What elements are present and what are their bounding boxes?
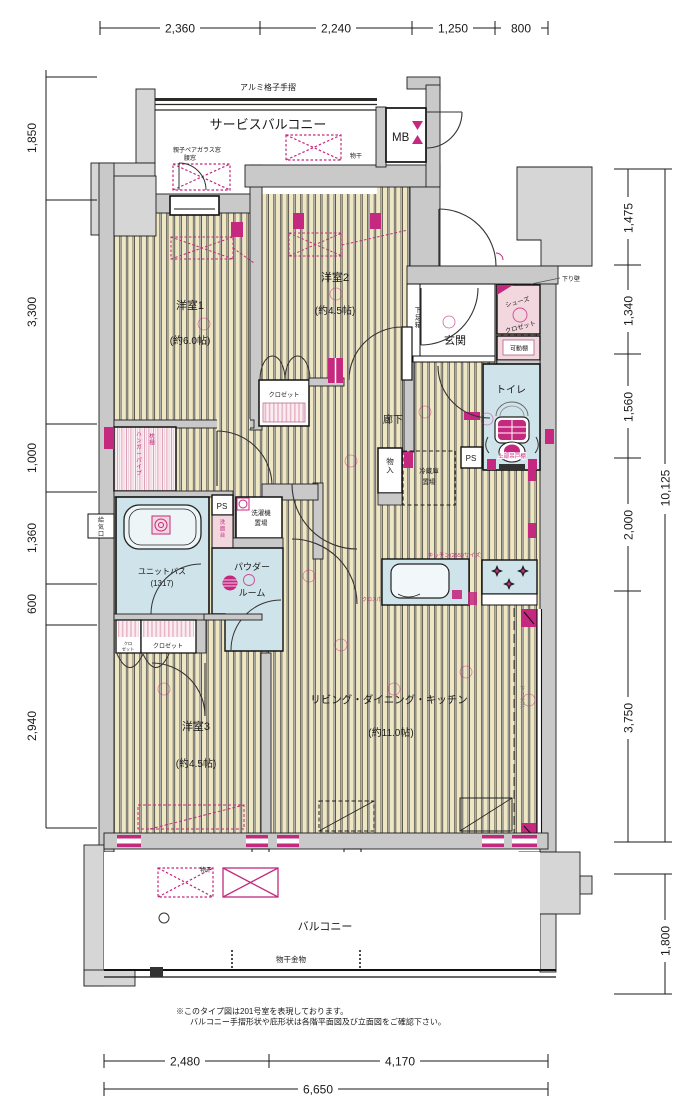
svg-text:下り壁: 下り壁	[562, 275, 580, 283]
svg-text:洋室3: 洋室3	[182, 719, 210, 733]
svg-text:物干: 物干	[350, 152, 362, 160]
svg-text:(約6.0帖): (約6.0帖)	[170, 334, 211, 347]
svg-text:バルコニー手摺形状や庇形状は各階平面図及び立面図をご確認下さ: バルコニー手摺形状や庇形状は各階平面図及び立面図をご確認下さい。	[190, 1017, 446, 1027]
svg-text:PS: PS	[217, 502, 228, 511]
svg-text:洗面台: 洗面台	[220, 518, 226, 539]
svg-text:物入: 物入	[386, 456, 394, 475]
svg-text:(約4.5帖): (約4.5帖)	[315, 304, 356, 317]
svg-text:クロゼット: クロゼット	[153, 642, 183, 650]
svg-text:2,360: 2,360	[165, 22, 195, 36]
svg-text:洗濯機: 洗濯機	[251, 508, 271, 517]
svg-text:洋室2: 洋室2	[321, 270, 349, 284]
svg-text:パウダー: パウダー	[234, 561, 270, 572]
svg-text:※このタイプ図は201号室を表現しております。: ※このタイプ図は201号室を表現しております。	[176, 1006, 348, 1016]
svg-text:2,480: 2,480	[170, 1055, 200, 1069]
svg-text:6,650: 6,650	[303, 1083, 333, 1097]
svg-text:2,000: 2,000	[622, 510, 636, 540]
svg-text:冷蔵庫: 冷蔵庫	[419, 466, 439, 475]
svg-text:MB: MB	[392, 132, 410, 144]
svg-text:1,560: 1,560	[622, 392, 636, 422]
svg-text:2,940: 2,940	[25, 711, 39, 741]
svg-text:(1317): (1317)	[150, 579, 173, 588]
svg-text:クロゼット: クロゼット	[269, 391, 300, 399]
svg-text:給気口: 給気口	[98, 516, 104, 538]
svg-text:ハンガーパイプ: ハンガーパイプ	[136, 432, 142, 477]
svg-text:1,800: 1,800	[659, 926, 673, 956]
svg-text:洋室1: 洋室1	[176, 298, 204, 312]
svg-text:1,475: 1,475	[622, 203, 636, 233]
svg-text:置場: 置場	[255, 518, 269, 527]
svg-text:(約11.0帖): (約11.0帖)	[368, 726, 413, 739]
svg-text:1,850: 1,850	[25, 123, 39, 153]
svg-text:サービスバルコニー: サービスバルコニー	[210, 117, 327, 132]
svg-text:バルコニー: バルコニー	[298, 920, 353, 933]
svg-text:ルーム: ルーム	[239, 588, 266, 598]
svg-text:4,170: 4,170	[385, 1055, 415, 1069]
svg-text:(約4.5帖): (約4.5帖)	[176, 757, 217, 770]
svg-text:3,300: 3,300	[25, 297, 39, 327]
svg-text:可動棚: 可動棚	[510, 345, 528, 353]
svg-text:ユニットバス: ユニットバス	[138, 567, 186, 576]
svg-text:物干金物: 物干金物	[276, 954, 306, 964]
svg-text:上部吊戸棚: 上部吊戸棚	[498, 452, 526, 460]
svg-text:1,000: 1,000	[25, 443, 39, 473]
svg-text:腰窓: 腰窓	[184, 154, 196, 162]
svg-text:10,125: 10,125	[659, 469, 673, 506]
svg-text:800: 800	[511, 22, 531, 36]
svg-text:玄関: 玄関	[444, 333, 466, 347]
svg-text:ゼット: ゼット	[122, 646, 135, 652]
svg-text:クロス巾: クロス巾	[362, 596, 382, 603]
svg-text:トイレ: トイレ	[496, 385, 526, 396]
svg-text:リビング・ダイニング・キッチン: リビング・ダイニング・キッチン	[310, 693, 468, 706]
svg-text:PS: PS	[466, 454, 477, 463]
svg-text:アルミ格子手摺: アルミ格子手摺	[240, 82, 296, 92]
svg-text:1,360: 1,360	[25, 523, 39, 553]
svg-text:下り天井: 下り天井	[520, 686, 525, 710]
svg-text:キッチン(2550サイズ): キッチン(2550サイズ)	[428, 551, 482, 559]
svg-text:600: 600	[25, 594, 39, 614]
svg-text:物干: 物干	[200, 866, 212, 874]
svg-text:廊下: 廊下	[383, 413, 403, 426]
svg-text:1,340: 1,340	[622, 296, 636, 326]
svg-text:置場: 置場	[423, 477, 437, 486]
svg-text:親子ペアガラス窓: 親子ペアガラス窓	[173, 146, 221, 154]
svg-text:1,250: 1,250	[438, 22, 468, 36]
svg-text:枕棚: 枕棚	[149, 432, 155, 447]
svg-text:2,240: 2,240	[321, 22, 351, 36]
svg-text:3,750: 3,750	[622, 703, 636, 733]
